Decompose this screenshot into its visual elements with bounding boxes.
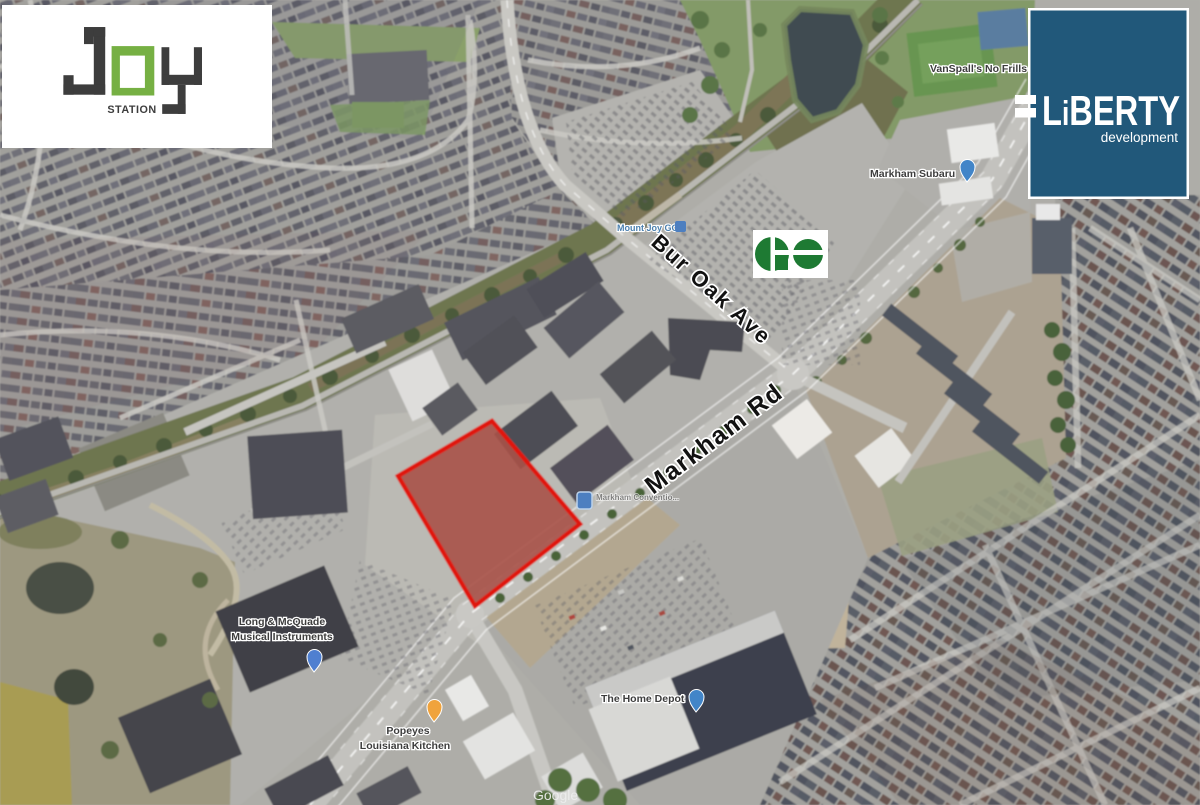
svg-text:Markham Conventio...: Markham Conventio... — [596, 493, 679, 502]
svg-text:Louisiana Kitchen: Louisiana Kitchen — [360, 740, 450, 752]
svg-text:The Home Depot: The Home Depot — [601, 693, 685, 705]
svg-text:Mount Joy GO: Mount Joy GO — [617, 223, 679, 233]
svg-text:Popeyes: Popeyes — [386, 725, 429, 737]
svg-text:development: development — [1101, 130, 1179, 145]
svg-text:STATION: STATION — [107, 104, 156, 116]
svg-text:Long & McQuade: Long & McQuade — [239, 616, 325, 628]
svg-text:VanSpall's No Frills: VanSpall's No Frills — [930, 63, 1027, 75]
svg-text:Google: Google — [533, 787, 578, 803]
svg-text:Markham Subaru: Markham Subaru — [870, 168, 955, 180]
svg-text:LiBERTY: LiBERTY — [1042, 87, 1180, 134]
svg-text:Musical Instruments: Musical Instruments — [231, 631, 333, 643]
